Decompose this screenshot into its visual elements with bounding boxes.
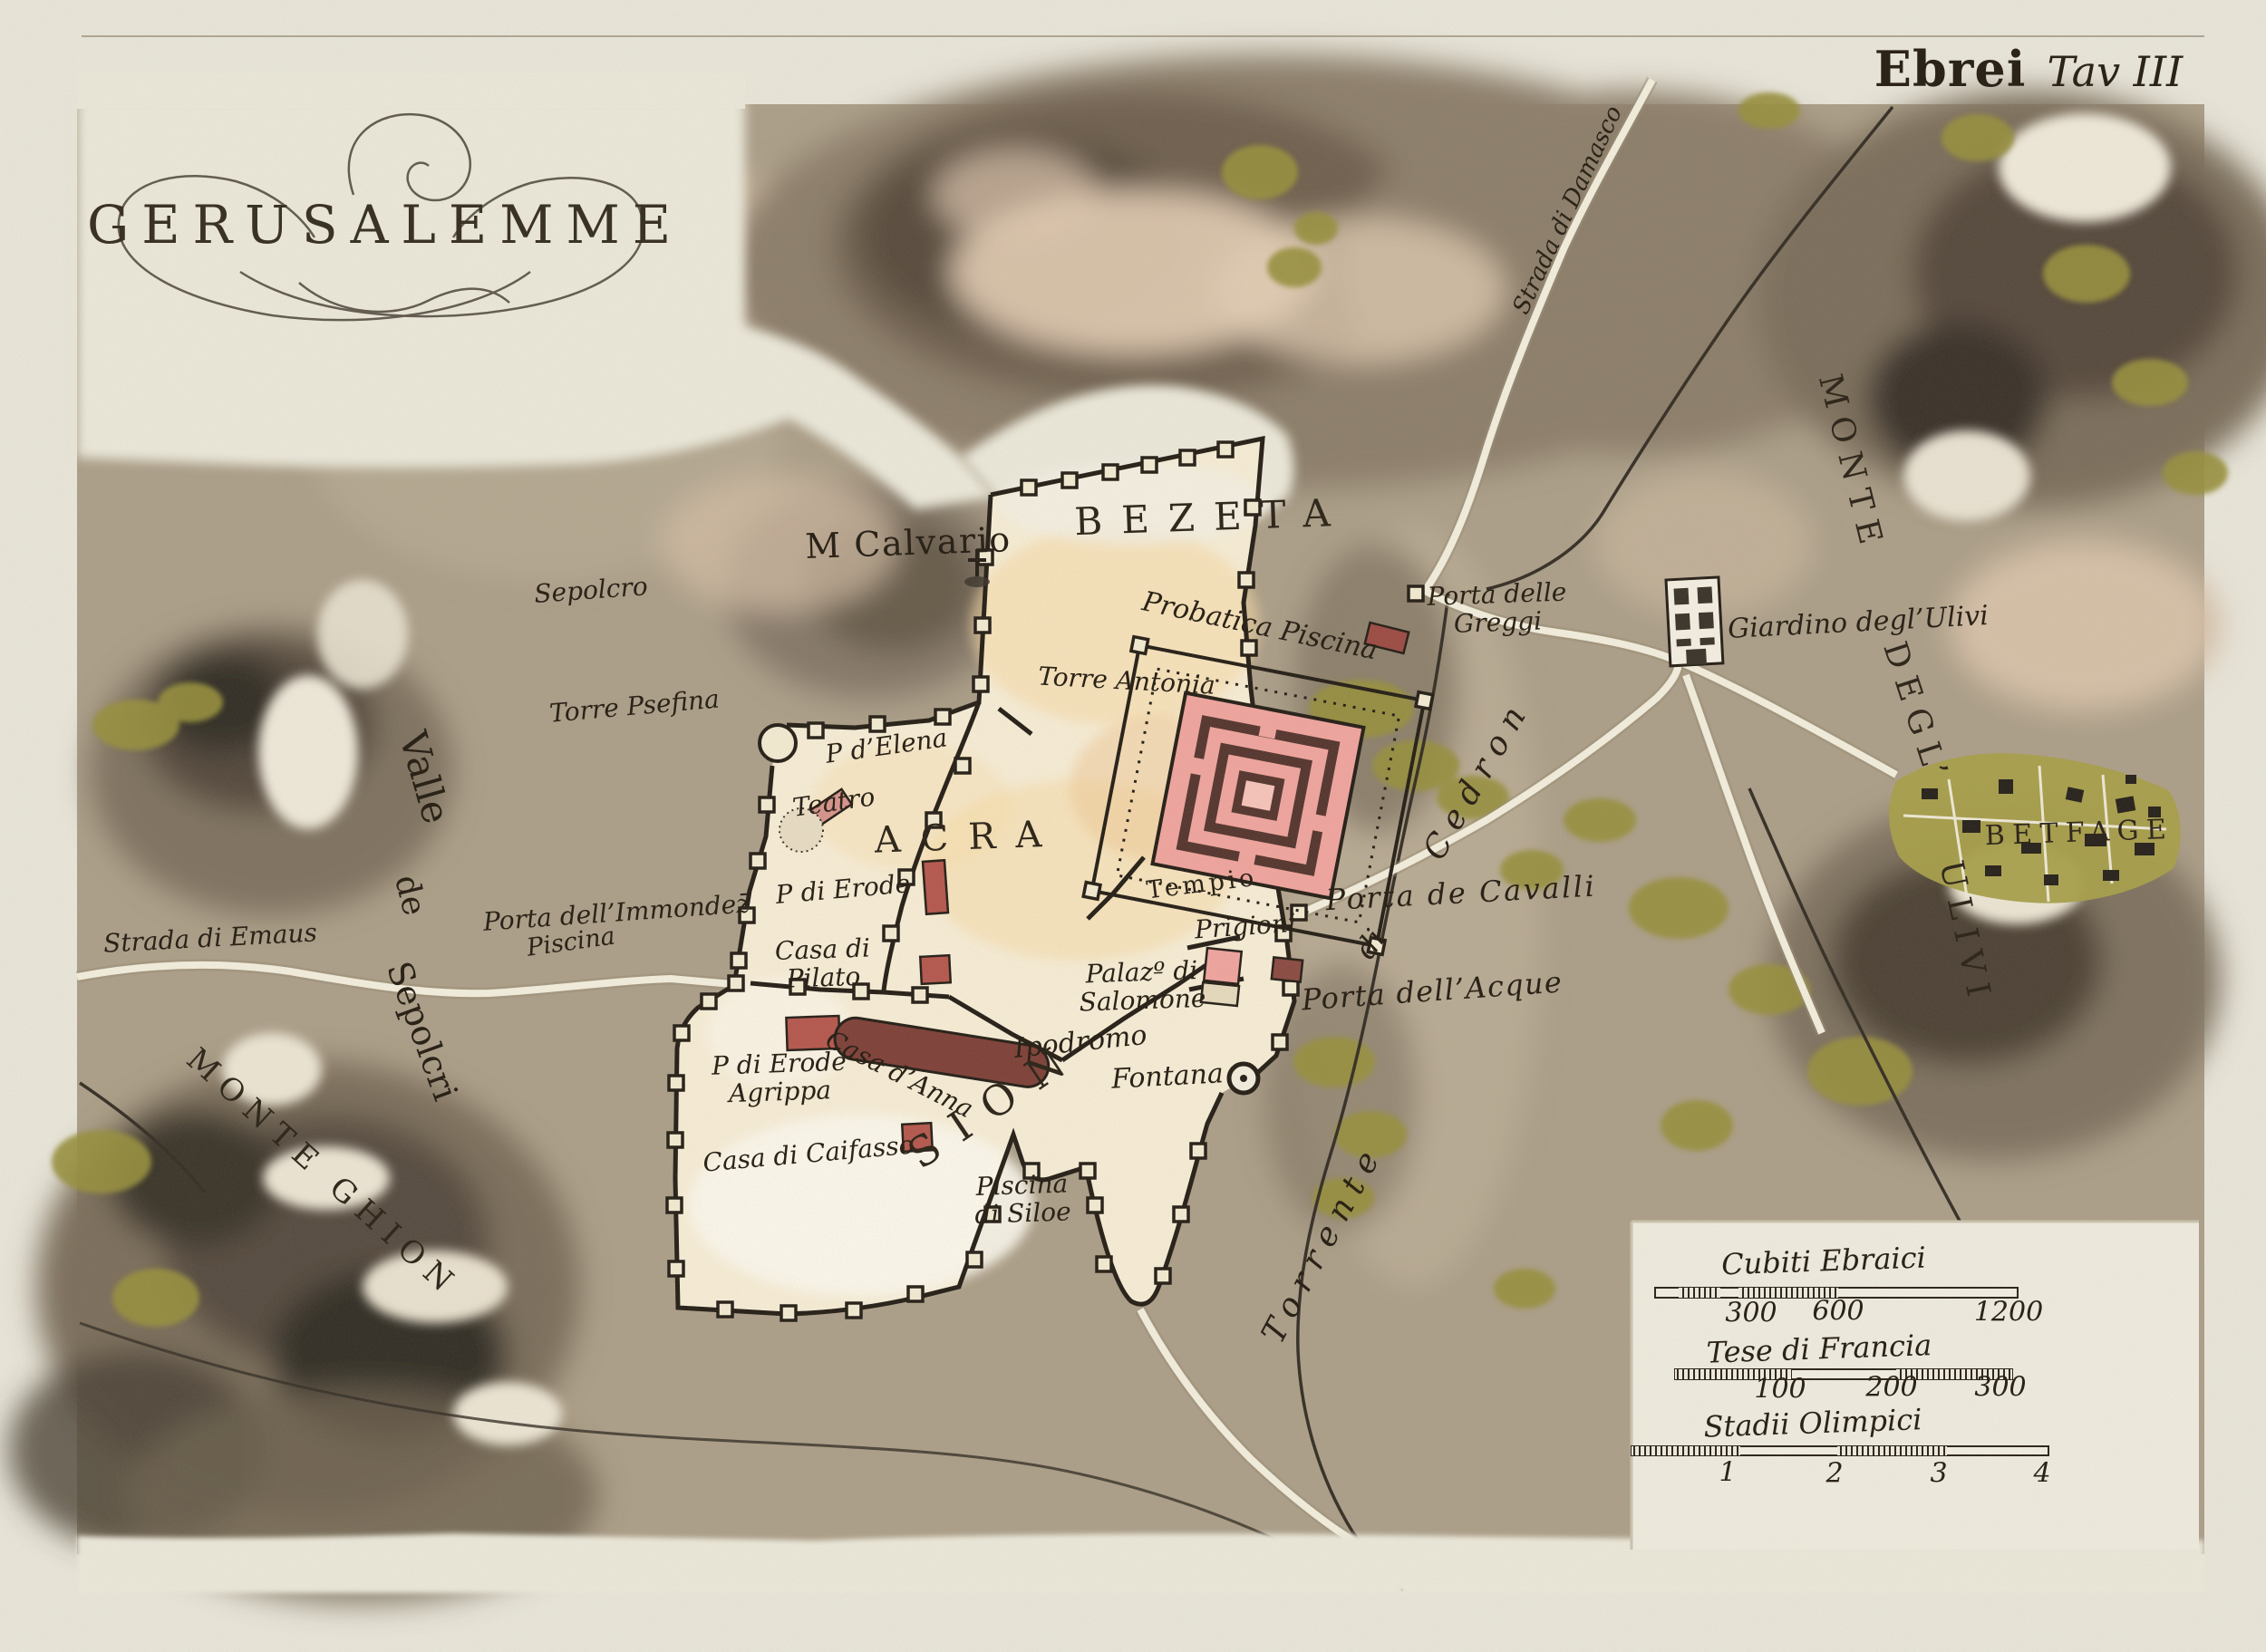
paper-grain bbox=[77, 104, 2204, 1554]
map-plate: SepolcroTorre PsefinaValledeSepolcriMONT… bbox=[0, 0, 2266, 1652]
plate-series: Ebrei bbox=[1874, 40, 2027, 98]
plate-number: Tav III bbox=[2048, 47, 2184, 96]
map-title: GERUSALEMME bbox=[87, 194, 683, 256]
plate-heading: Ebrei Tav III bbox=[1874, 40, 2183, 98]
